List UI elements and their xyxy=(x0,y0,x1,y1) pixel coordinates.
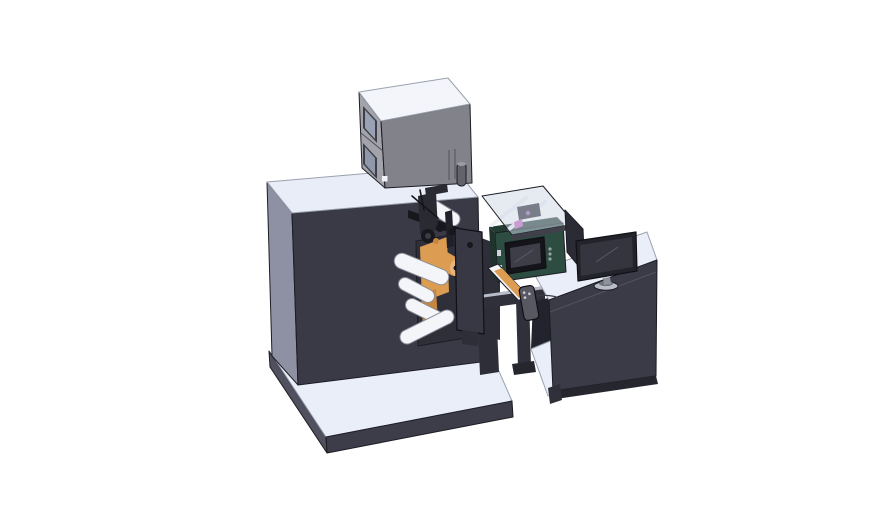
cad-render-viewport xyxy=(0,0,888,522)
mid-frame-support xyxy=(478,327,499,375)
support-foot xyxy=(512,361,536,375)
monitor-stand-stem xyxy=(603,277,611,285)
hmi-button-2[interactable] xyxy=(548,252,551,255)
label-press-render xyxy=(0,0,888,522)
signal-cylinder-top xyxy=(457,162,466,166)
mech-roller-small-1 xyxy=(436,224,444,232)
mech-orange-bit xyxy=(433,238,439,244)
front-plate-tab xyxy=(462,330,478,346)
mech-gear-hub xyxy=(425,233,431,239)
hmi-button-1[interactable] xyxy=(548,247,551,250)
hmi-button-3[interactable] xyxy=(548,257,551,260)
front-mounting-plate xyxy=(455,228,484,346)
cabinet-corner-square xyxy=(382,176,388,182)
top-cabinet xyxy=(359,78,472,188)
front-plate-hole xyxy=(467,242,473,248)
signal-cylinder xyxy=(457,163,466,186)
hmi-clasp-upper xyxy=(497,250,501,256)
